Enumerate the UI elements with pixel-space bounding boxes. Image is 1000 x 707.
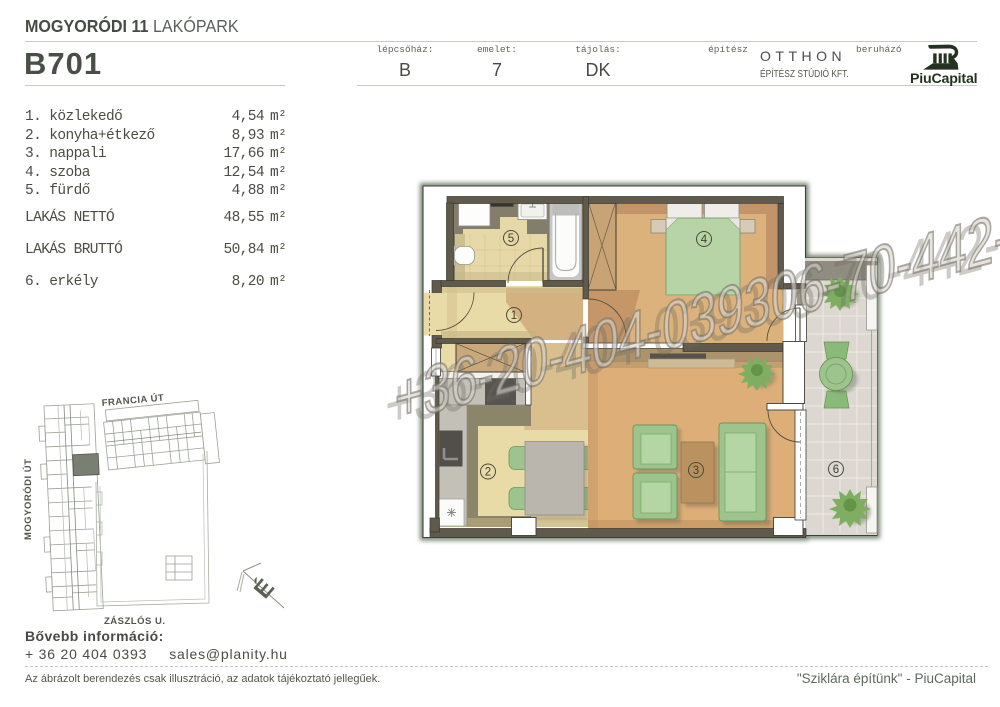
svg-text:6: 6 [833, 464, 839, 476]
svg-text:2: 2 [485, 467, 491, 479]
svg-text:4: 4 [701, 234, 708, 246]
svg-text:MOGYORÓDI ÚT: MOGYORÓDI ÚT [22, 459, 34, 540]
svg-text:PiuCapital: PiuCapital [910, 71, 977, 87]
svg-text:5: 5 [508, 233, 514, 245]
svg-text:É: É [248, 574, 280, 604]
svg-text:ZÁSZLÓS U.: ZÁSZLÓS U. [104, 615, 165, 627]
svg-text:1: 1 [511, 310, 517, 322]
svg-text:3: 3 [693, 465, 699, 477]
